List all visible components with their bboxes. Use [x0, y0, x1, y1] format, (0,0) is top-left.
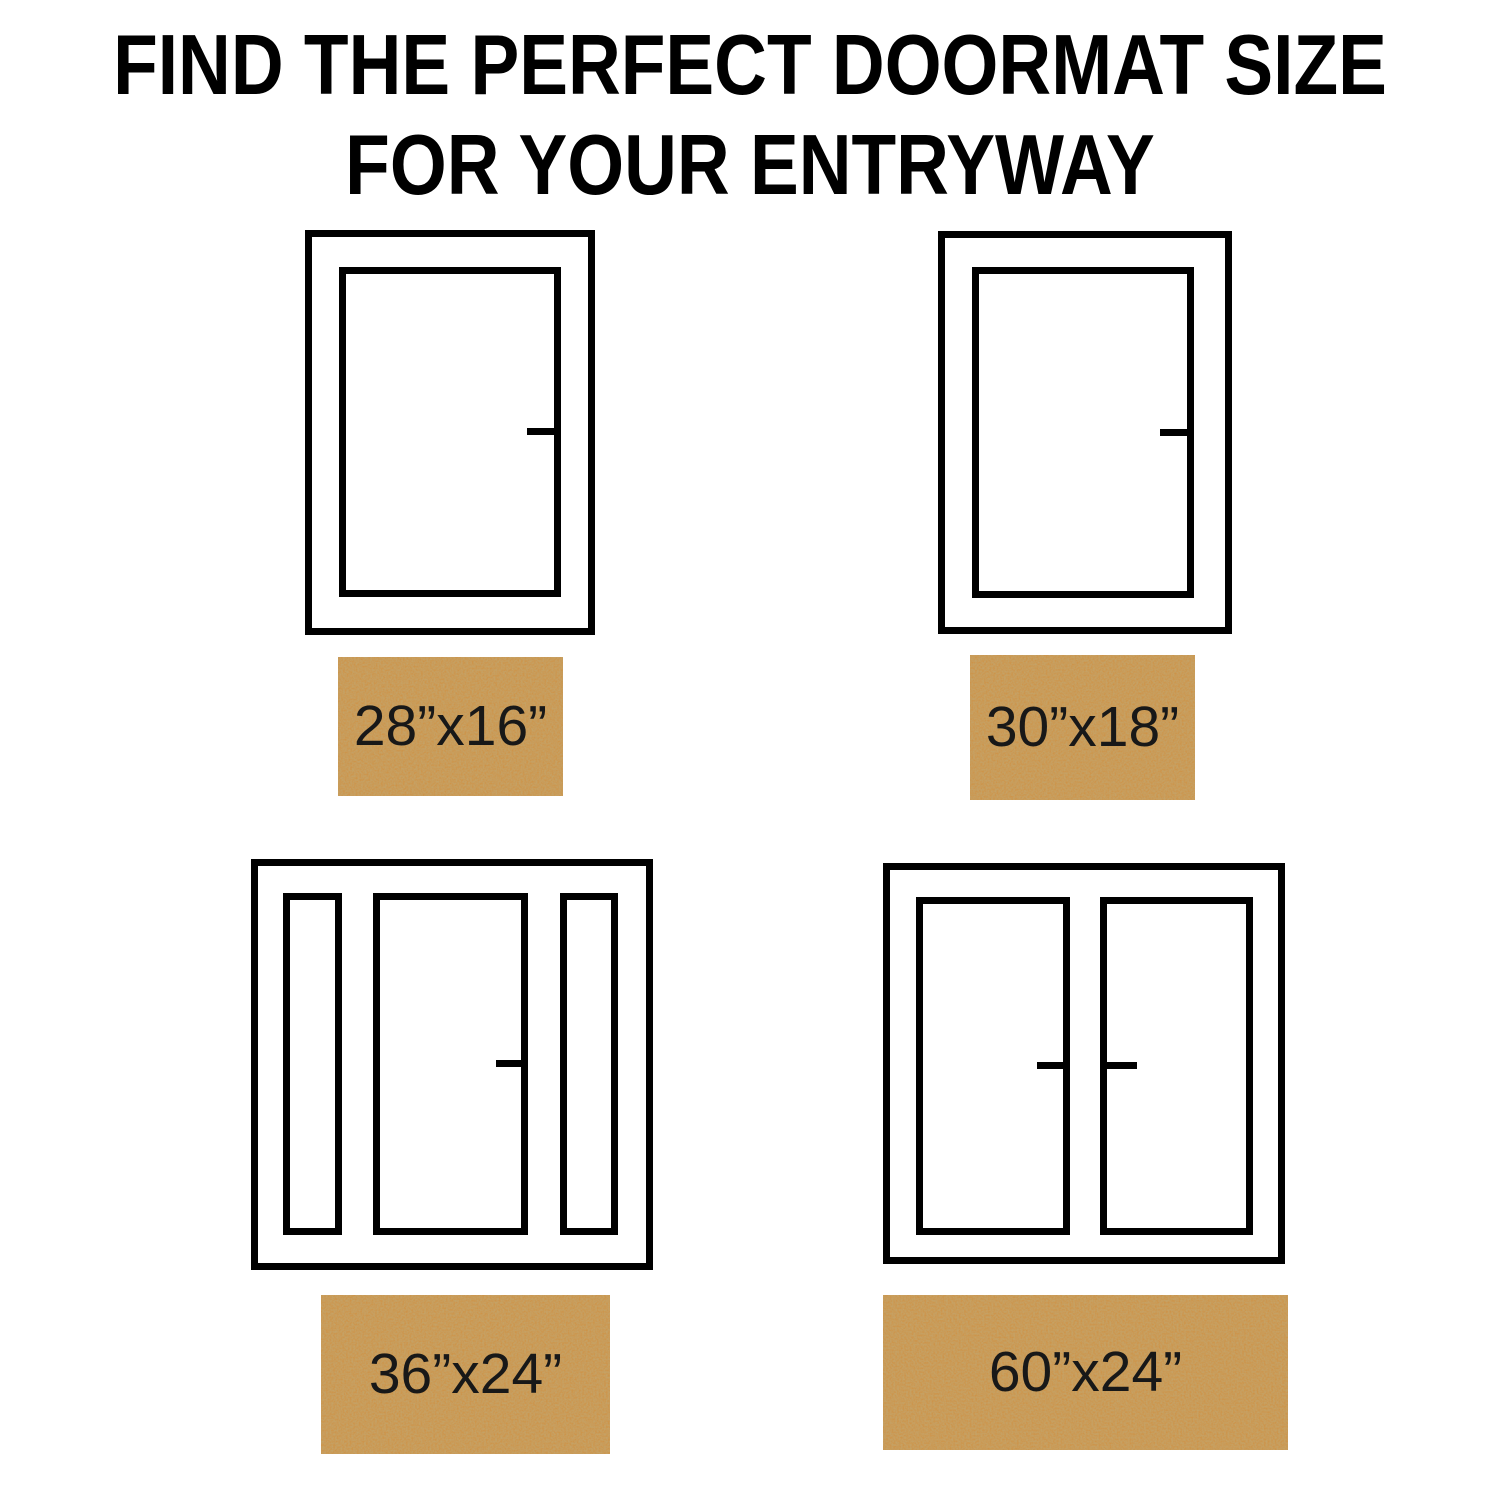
doormat-28x16: 28”x16”	[338, 657, 563, 796]
doormat-size-label: 30”x18”	[986, 699, 1179, 756]
doormat-60x24: 60”x24”	[883, 1295, 1288, 1450]
door-panel	[972, 267, 1194, 598]
doormat-size-label: 60”x24”	[989, 1344, 1182, 1401]
door-panel-left	[916, 897, 1070, 1235]
door-panel-right	[1100, 897, 1253, 1235]
door-handle	[1037, 1062, 1063, 1069]
doormat-30x18: 30”x18”	[970, 655, 1195, 800]
doormat-36x24: 36”x24”	[321, 1295, 610, 1454]
doormat-size-label: 28”x16”	[354, 698, 547, 755]
door-with-sidelights-diagram	[251, 859, 653, 1270]
sidelight-right	[560, 893, 618, 1235]
door-handle	[496, 1060, 521, 1067]
door-panel	[373, 893, 528, 1235]
door-handle	[1107, 1062, 1137, 1069]
page-title-line-2: FOR YOUR ENTRYWAY	[105, 116, 1395, 216]
page-title: FIND THE PERFECT DOORMAT SIZE FOR YOUR E…	[0, 16, 1500, 216]
door-handle	[527, 428, 554, 435]
page-title-line-1: FIND THE PERFECT DOORMAT SIZE	[105, 16, 1395, 116]
single-door-diagram-1	[305, 230, 595, 635]
doormat-size-guide: FIND THE PERFECT DOORMAT SIZE FOR YOUR E…	[0, 0, 1500, 1500]
double-door-diagram	[883, 863, 1285, 1264]
sidelight-left	[283, 893, 342, 1235]
door-handle	[1160, 429, 1187, 436]
single-door-diagram-2	[938, 231, 1232, 634]
doormat-size-label: 36”x24”	[369, 1346, 562, 1403]
door-panel	[339, 267, 561, 597]
